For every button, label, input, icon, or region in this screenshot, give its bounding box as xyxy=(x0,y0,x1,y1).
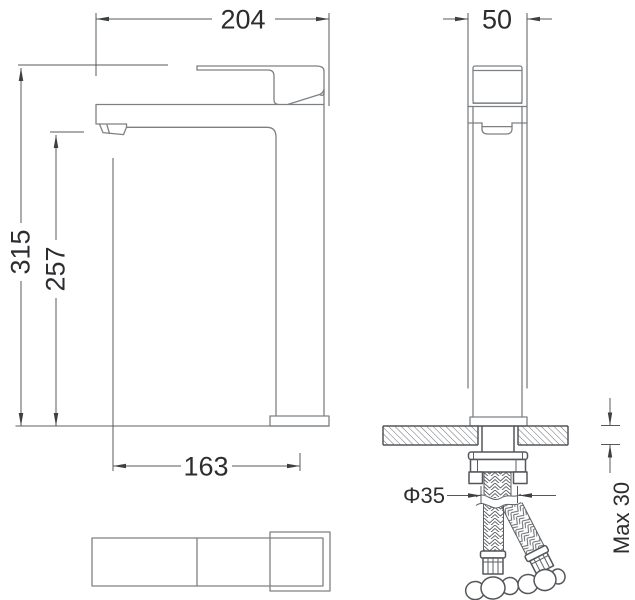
dimension-spout-reach: 163 xyxy=(113,158,300,482)
countertop xyxy=(383,426,568,445)
handle-lever xyxy=(197,66,324,104)
dimension-overall-length: 204 xyxy=(96,5,329,106)
dim-spout-reach-text: 163 xyxy=(183,452,228,482)
aerator xyxy=(100,124,127,135)
dim-overall-length-text: 204 xyxy=(220,5,265,35)
top-view xyxy=(92,532,330,591)
dimension-max-thickness: Max 30 xyxy=(601,398,634,554)
front-view xyxy=(16,66,329,426)
side-view xyxy=(468,13,527,426)
dim-spout-outlet-height-text: 257 xyxy=(41,246,71,291)
dim-body-width-text: 50 xyxy=(482,5,512,35)
hose-end-fitting-right xyxy=(516,567,567,596)
dimension-spout-outlet-height: 257 xyxy=(41,132,84,426)
faucet-dimensional-drawing: 204 315 257 163 xyxy=(0,0,635,600)
spout-and-body xyxy=(96,71,324,416)
dim-total-height-text: 315 xyxy=(6,229,36,274)
base-plate xyxy=(270,416,329,426)
drawing-canvas: 204 315 257 163 xyxy=(0,0,635,600)
side-handle xyxy=(473,66,522,103)
dimension-total-height: 315 xyxy=(6,65,168,426)
hose-end-fitting-left xyxy=(465,575,520,600)
dim-max-thickness-text: Max 30 xyxy=(609,482,634,554)
top-view-handle xyxy=(270,532,330,591)
dim-hole-diameter-text: Φ35 xyxy=(403,483,445,508)
top-view-spout xyxy=(92,538,323,586)
supply-hoses xyxy=(465,472,567,600)
dimension-body-width: 50 xyxy=(443,5,552,35)
side-base-flange xyxy=(470,417,527,426)
side-aerator xyxy=(482,123,512,134)
